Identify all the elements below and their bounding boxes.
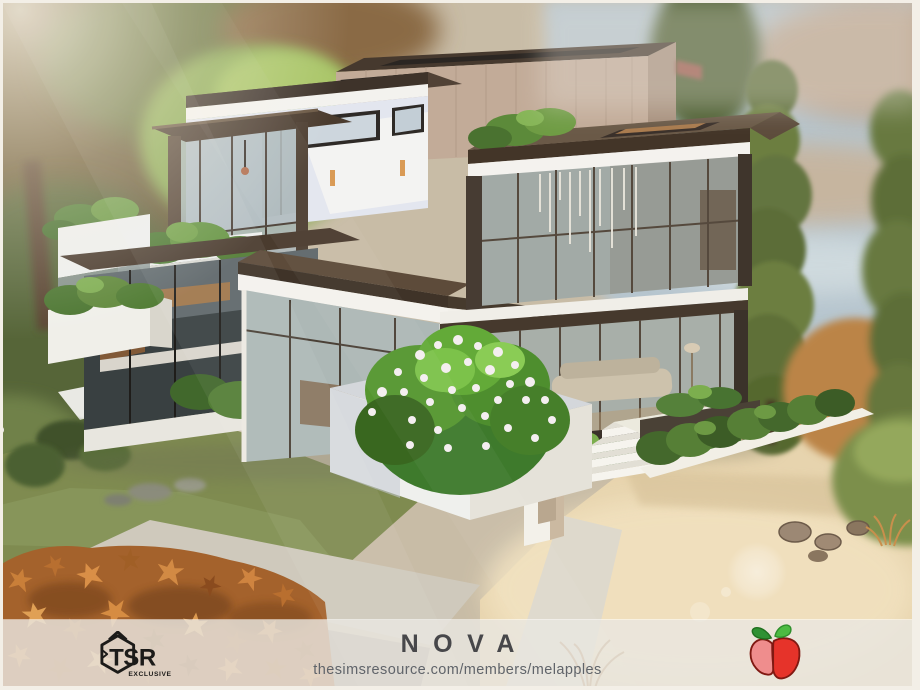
creator-url: thesimsresource.com/members/melapples xyxy=(313,663,601,678)
apple-leaf-left xyxy=(752,628,771,639)
tsr-logo-subtext: EXCLUSIVE xyxy=(128,671,171,678)
build-title: NOVA xyxy=(386,632,529,657)
scene-render xyxy=(0,0,920,690)
tsr-logo-text: TSR xyxy=(109,645,156,672)
tsr-screenshot-nova-house: TSR EXCLUSIVE NOVA thesimsresource.com/m… xyxy=(0,0,920,690)
apple-right-lobe xyxy=(773,638,799,678)
apple-left-lobe xyxy=(751,639,774,674)
apple-leaf-right xyxy=(775,625,791,637)
tsr-exclusive-logo: TSR EXCLUSIVE xyxy=(98,631,176,681)
footer-caption-bar: TSR EXCLUSIVE NOVA thesimsresource.com/m… xyxy=(3,620,912,686)
bookshelf-silhouette xyxy=(700,190,736,270)
melapples-apple-logo xyxy=(745,621,805,685)
lens-flare xyxy=(727,542,787,602)
